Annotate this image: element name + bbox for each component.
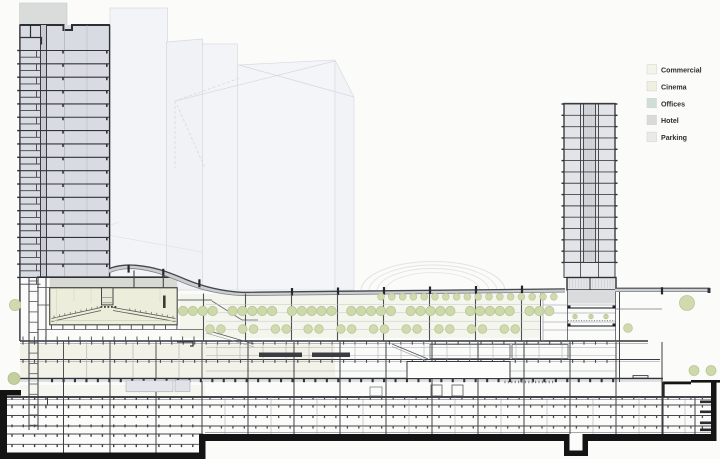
svg-text:Offices: Offices: [661, 100, 685, 108]
svg-text:Parking: Parking: [661, 134, 687, 142]
svg-text:Commercial: Commercial: [661, 67, 702, 75]
svg-text:Cinema: Cinema: [661, 83, 687, 91]
svg-text:Hotel: Hotel: [661, 117, 679, 125]
